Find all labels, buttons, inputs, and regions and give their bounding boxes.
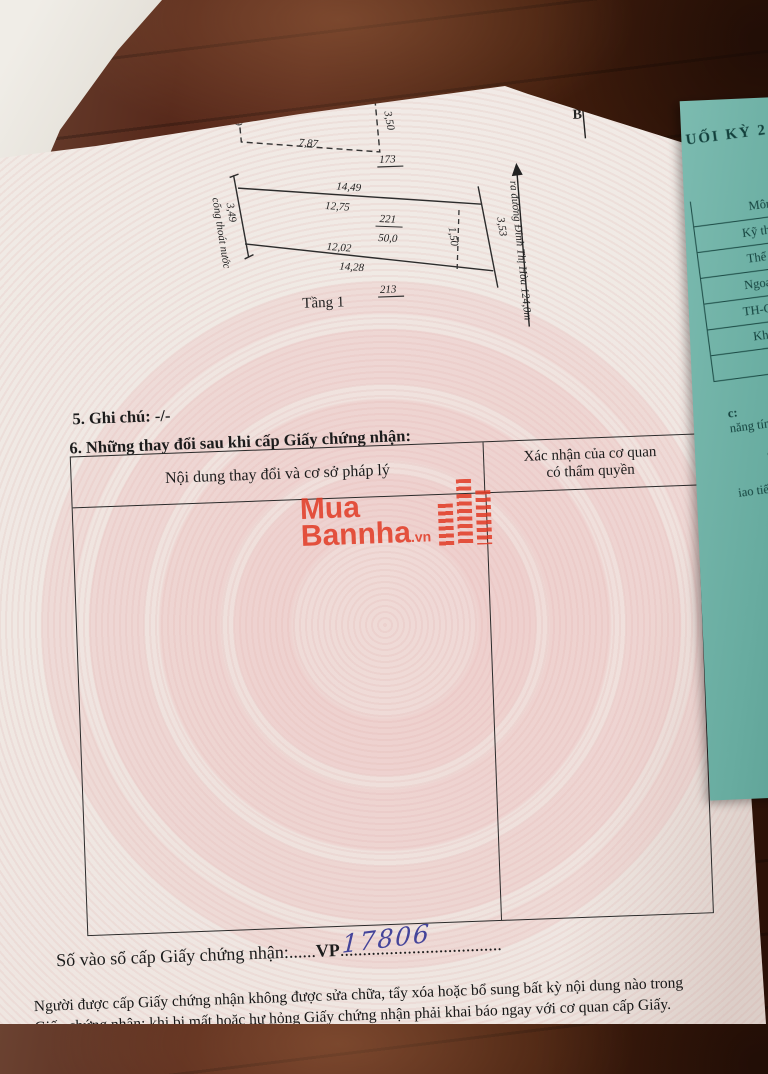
adjacent-parcel-173: 173 <box>379 153 396 166</box>
col-authority-line2: có thẩm quyền <box>546 462 635 482</box>
register-dots-left: ...... <box>288 941 316 962</box>
dim-dashed: 1,50 <box>446 226 461 247</box>
parcel-173-underline <box>377 166 403 167</box>
north-label: B <box>572 107 582 122</box>
muabannha-watermark: Mua Bannha.vn <box>299 478 493 551</box>
watermark-vn: .vn <box>411 529 432 546</box>
floor1-label: Tầng 1 <box>302 294 345 312</box>
certificate-content: 4. Sơ đồ thửa đất, tài sản gắn liền với … <box>0 0 768 1074</box>
dim-top-outer: 14,49 <box>336 181 362 195</box>
parcel-213-underline <box>378 296 404 297</box>
changes-table-body <box>73 486 713 936</box>
empty-cell-left <box>73 493 502 935</box>
register-number-line: Số vào sổ cấp Giấy chứng nhận:......VP..… <box>56 934 502 971</box>
mezzanine-label: Tầng lửng <box>171 109 234 127</box>
mezzanine-dim-bottom: 7,87 <box>298 137 319 150</box>
area-fraction-line <box>376 225 403 228</box>
report-fragment: ập và <box>741 574 768 608</box>
mezzanine-dim-right: 3,50 <box>381 109 396 132</box>
section5-note: 5. Ghi chú: -/- <box>72 406 171 430</box>
report-header: UỐI KỲ 2 <box>681 116 768 150</box>
report-fragment: T <box>733 509 768 542</box>
dim-top-inner: 12,75 <box>325 200 351 214</box>
buildings-icon <box>437 478 492 546</box>
watermark-word2: Bannha <box>300 516 411 553</box>
report-table: Môn Kỹ thuật Thể dục Ngoại ngữ TH-CN (Ti… <box>690 185 768 382</box>
plot-diagram: Tầng lửng 8,05 7,87 3,49 3,50 173 B <box>134 72 614 367</box>
register-prefix: VP <box>315 940 340 961</box>
mezzanine-dim-top: 8,05 <box>298 88 319 101</box>
dim-bottom-outer: 14,28 <box>339 261 365 275</box>
certificate-paper: 4. Sơ đồ thửa đất, tài sản gắn liền với … <box>0 0 768 1024</box>
road-label: ra đường Đinh Thị Hòa 124,0m <box>507 180 534 321</box>
parcel-code: 221 <box>379 213 396 226</box>
dim-bottom-inner: 12,02 <box>326 241 352 255</box>
section4-title: 4. Sơ đồ thửa đất, tài sản gắn liền với … <box>83 56 386 87</box>
adjacent-parcel-213: 213 <box>380 283 397 296</box>
photo-of-land-certificate: { "document": { "section4_title": "4. Sơ… <box>0 0 768 1024</box>
register-label: Số vào sổ cấp Giấy chứng nhận: <box>56 942 289 971</box>
plot-area: 50,0 <box>378 232 398 245</box>
mezzanine-dim-left: 3,49 <box>229 105 244 128</box>
watermark-text: Mua Bannha.vn <box>299 491 431 551</box>
col-authority-confirm: Xác nhận của cơ quan có thẩm quyền <box>483 435 697 493</box>
watermark-word2-row: Bannha.vn <box>300 519 431 551</box>
dim-right: 3,53 <box>494 215 509 237</box>
warning-note: Người được cấp Giấy chứng nhận không đượ… <box>34 969 768 1038</box>
